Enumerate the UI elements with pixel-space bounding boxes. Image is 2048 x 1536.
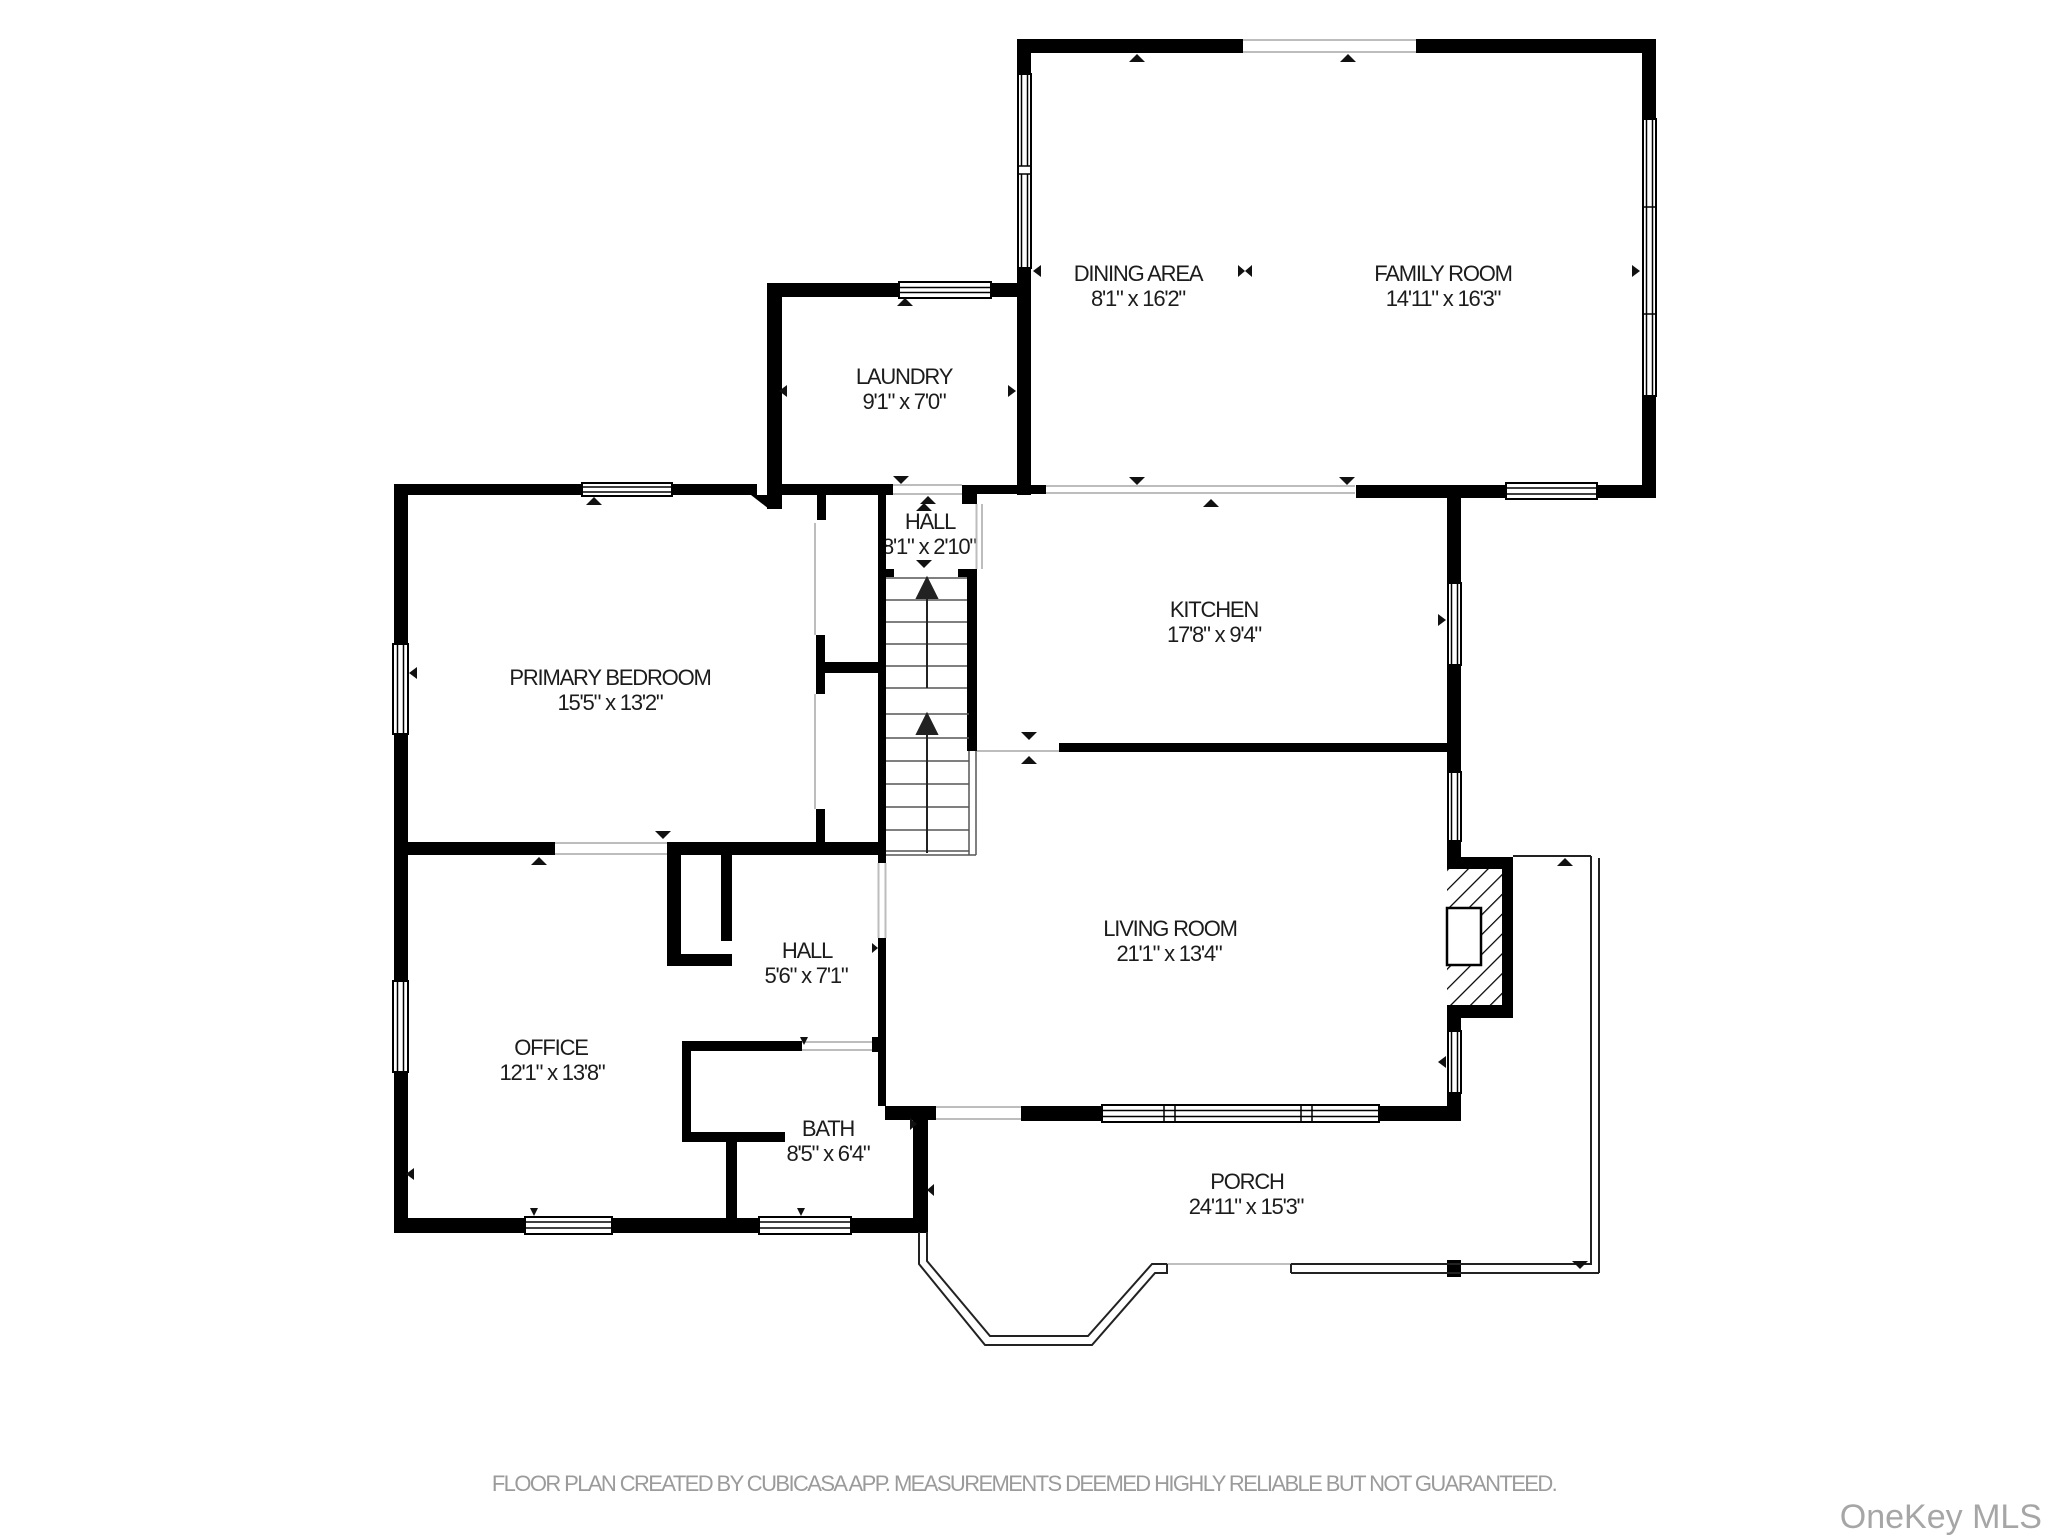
svg-text:KITCHEN: KITCHEN [1170,597,1258,622]
svg-text:HALL: HALL [782,938,833,963]
svg-text:8'1" x 2'10": 8'1" x 2'10" [882,534,976,559]
svg-text:8'5" x 6'4": 8'5" x 6'4" [787,1141,870,1166]
svg-text:LAUNDRY: LAUNDRY [856,364,954,389]
svg-text:9'1" x 7'0": 9'1" x 7'0" [863,389,946,414]
svg-text:15'5" x 13'2": 15'5" x 13'2" [557,690,662,715]
svg-text:8'1" x 16'2": 8'1" x 16'2" [1091,286,1185,311]
svg-text:HALL: HALL [905,509,956,534]
svg-text:LIVING ROOM: LIVING ROOM [1103,916,1237,941]
svg-text:14'11" x 16'3": 14'11" x 16'3" [1386,286,1501,311]
svg-text:BATH: BATH [802,1116,855,1141]
svg-text:24'11" x 15'3": 24'11" x 15'3" [1189,1194,1304,1219]
svg-text:5'6" x 7'1": 5'6" x 7'1" [765,963,848,988]
svg-text:21'1" x 13'4": 21'1" x 13'4" [1116,941,1221,966]
svg-text:PORCH: PORCH [1210,1169,1284,1194]
svg-text:OneKey MLS: OneKey MLS [1840,1498,2042,1536]
svg-text:OFFICE: OFFICE [514,1035,588,1060]
svg-text:FLOOR PLAN CREATED BY CUBICASA: FLOOR PLAN CREATED BY CUBICASA APP. MEAS… [492,1471,1557,1496]
svg-text:12'1" x 13'8": 12'1" x 13'8" [499,1060,604,1085]
svg-text:FAMILY ROOM: FAMILY ROOM [1374,261,1512,286]
svg-text:DINING AREA: DINING AREA [1074,261,1204,286]
svg-text:17'8" x 9'4": 17'8" x 9'4" [1167,622,1261,647]
svg-text:PRIMARY BEDROOM: PRIMARY BEDROOM [509,665,710,690]
